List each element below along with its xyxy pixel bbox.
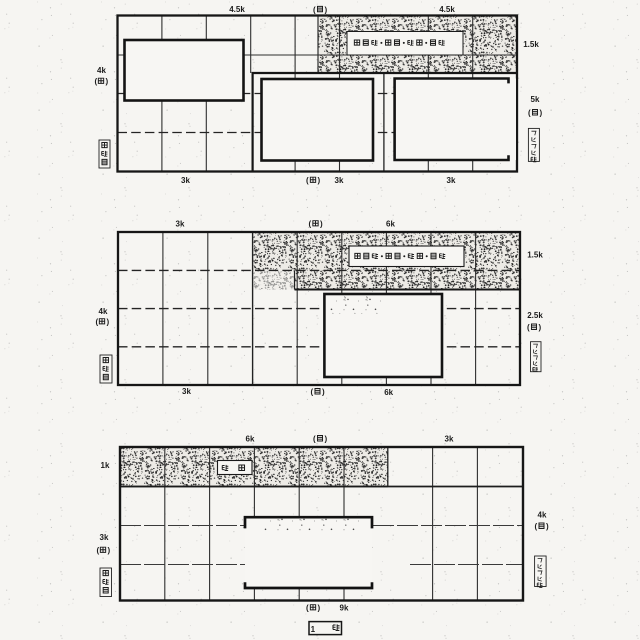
svg-text:1.5k: 1.5k bbox=[523, 40, 539, 49]
svg-text:): ) bbox=[318, 604, 321, 613]
svg-text:(: ( bbox=[95, 77, 98, 86]
svg-text:1: 1 bbox=[311, 625, 316, 634]
svg-text:): ) bbox=[325, 435, 328, 444]
svg-text:): ) bbox=[108, 546, 111, 555]
svg-text:): ) bbox=[318, 176, 321, 185]
svg-text:3k: 3k bbox=[445, 435, 454, 444]
svg-text:9k: 9k bbox=[340, 604, 349, 613]
svg-text:): ) bbox=[540, 109, 543, 118]
svg-text:): ) bbox=[320, 220, 323, 229]
svg-text:1.5k: 1.5k bbox=[527, 251, 543, 260]
svg-text:): ) bbox=[322, 388, 325, 397]
svg-text:(: ( bbox=[306, 604, 309, 613]
svg-text:4k: 4k bbox=[99, 307, 108, 316]
svg-text:): ) bbox=[106, 77, 109, 86]
svg-text:): ) bbox=[546, 522, 549, 531]
svg-text:): ) bbox=[325, 6, 328, 15]
svg-text:(: ( bbox=[311, 388, 314, 397]
svg-text:): ) bbox=[107, 318, 110, 327]
svg-text:(: ( bbox=[306, 176, 309, 185]
svg-text:3k: 3k bbox=[335, 176, 344, 185]
svg-text:(: ( bbox=[535, 522, 538, 531]
svg-text:4.5k: 4.5k bbox=[439, 5, 455, 14]
svg-text:1k: 1k bbox=[101, 461, 110, 470]
svg-text:(: ( bbox=[528, 109, 531, 118]
svg-text:(: ( bbox=[313, 6, 316, 15]
svg-text:2.5k: 2.5k bbox=[527, 311, 543, 320]
svg-text:4.5k: 4.5k bbox=[229, 5, 245, 14]
svg-text:(: ( bbox=[527, 323, 530, 332]
svg-text:6k: 6k bbox=[386, 220, 395, 229]
svg-text:5k: 5k bbox=[531, 95, 540, 104]
svg-text:6k: 6k bbox=[384, 388, 393, 397]
svg-text:3k: 3k bbox=[182, 387, 191, 396]
svg-text:3k: 3k bbox=[181, 176, 190, 185]
svg-text:6k: 6k bbox=[246, 435, 255, 444]
svg-text:(: ( bbox=[309, 220, 312, 229]
svg-text:(: ( bbox=[313, 435, 316, 444]
svg-text:3k: 3k bbox=[176, 220, 185, 229]
svg-text:3k: 3k bbox=[447, 176, 456, 185]
svg-text:): ) bbox=[539, 323, 542, 332]
svg-text:4k: 4k bbox=[97, 66, 106, 75]
svg-text:(: ( bbox=[96, 318, 99, 327]
svg-text:3k: 3k bbox=[100, 533, 109, 542]
svg-text:4k: 4k bbox=[538, 511, 547, 520]
svg-text:(: ( bbox=[97, 546, 100, 555]
